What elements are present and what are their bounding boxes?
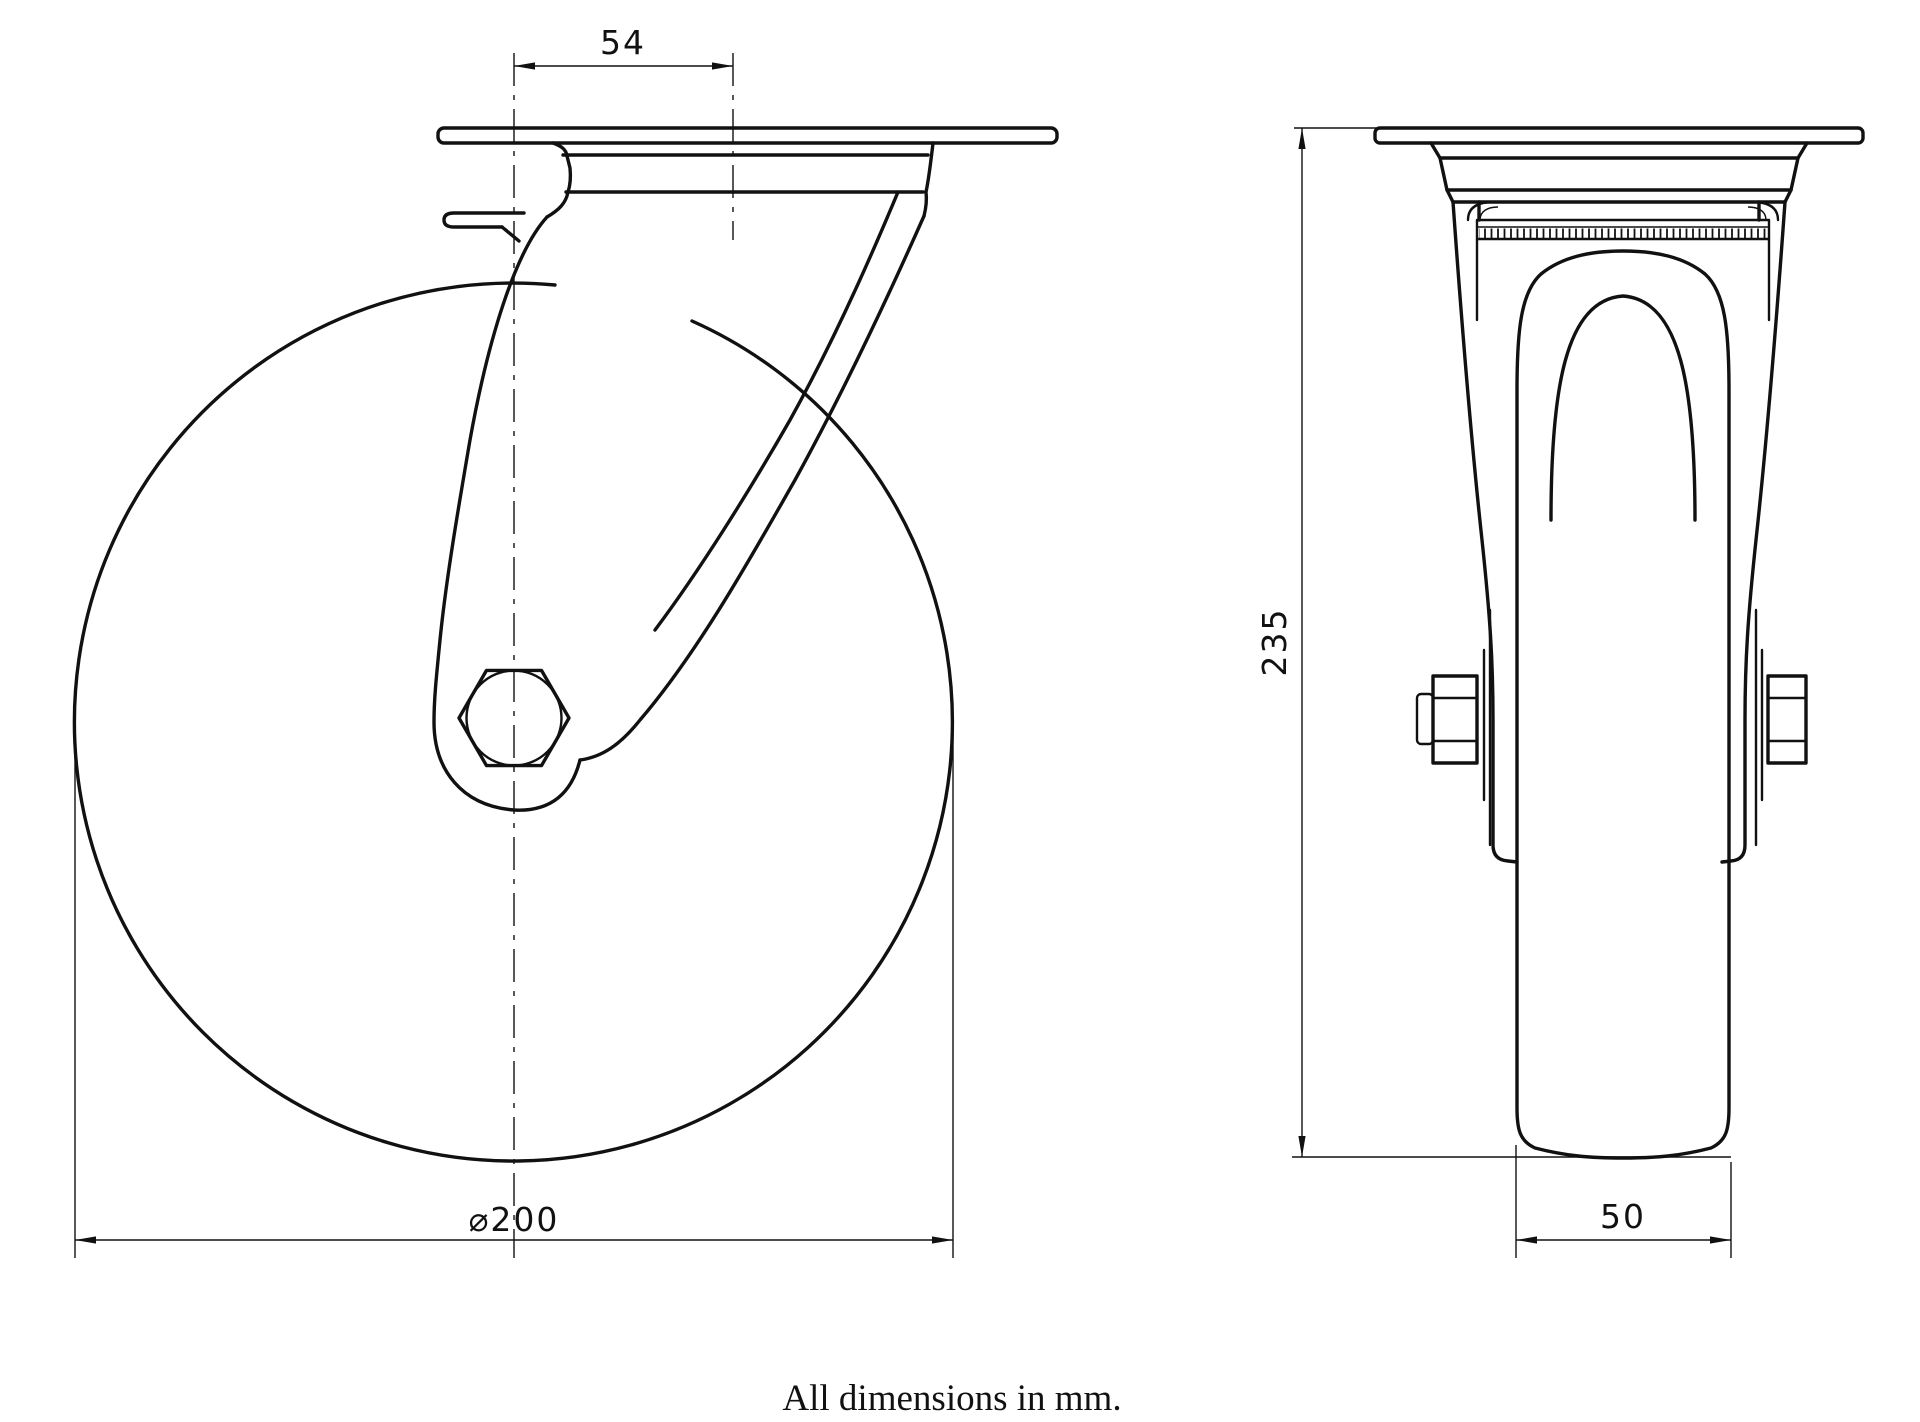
dimension-wheel-width: 50 [1516, 1145, 1731, 1258]
swivel-head [547, 143, 933, 217]
mounting-plate-front [1375, 128, 1863, 143]
bearing-race [1468, 202, 1778, 320]
dimension-overall-height: 235 [1255, 128, 1731, 1157]
dimension-swivel-offset: 54 [514, 23, 733, 66]
side-view: 54 ⌀200 [74, 23, 1057, 1258]
wheel-front [1517, 251, 1729, 1158]
fork-legs-front [1453, 202, 1785, 862]
front-view: 235 50 [1255, 128, 1863, 1258]
lock-tab [444, 213, 524, 241]
mounting-plate [438, 128, 1057, 143]
dimension-swivel-offset-value: 54 [600, 23, 646, 62]
technical-drawing-caster: 54 ⌀200 [0, 0, 1920, 1422]
fork-legs [434, 192, 924, 810]
dimension-wheel-diameter-value: ⌀200 [469, 1200, 560, 1239]
dimension-overall-height-value: 235 [1255, 608, 1294, 677]
axle-assembly [1417, 676, 1806, 763]
swivel-head-front [1431, 143, 1807, 202]
centerlines [514, 53, 733, 1258]
units-note: All dimensions in mm. [782, 1378, 1121, 1419]
dimension-wheel-width-value: 50 [1600, 1197, 1646, 1236]
